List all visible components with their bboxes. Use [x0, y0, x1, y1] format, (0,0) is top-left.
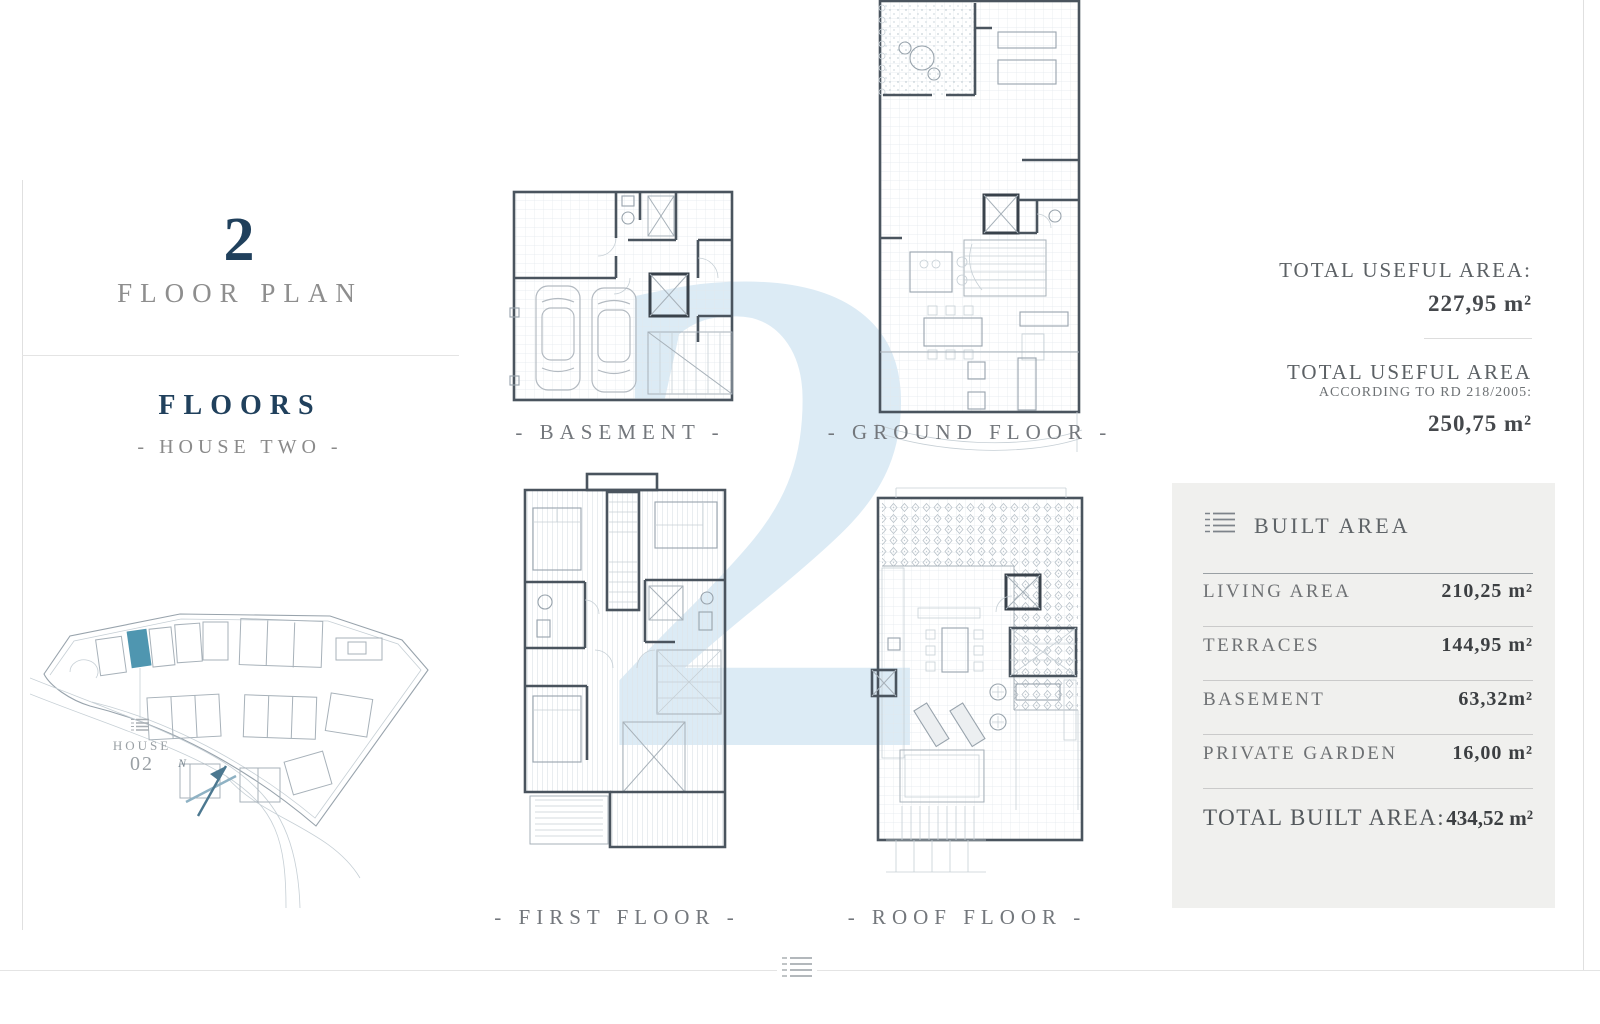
row-divider — [1203, 626, 1533, 627]
useful-area-label: TOTAL USEFUL AREA: — [1279, 258, 1532, 283]
useful-area-block-1: TOTAL USEFUL AREA: 227,95 m² — [1279, 258, 1532, 317]
useful-area-value: 227,95 m² — [1279, 291, 1532, 317]
page-subtitle: FLOOR PLAN — [22, 278, 458, 309]
house-number: 02 — [97, 753, 187, 776]
row-divider — [1203, 734, 1533, 735]
plan-label-first-floor: - FIRST FLOOR - — [467, 905, 767, 930]
page-number: 2 — [22, 205, 458, 276]
useful-area-rd-value: 250,75 m² — [1287, 411, 1532, 437]
row-value: 63,32m² — [1458, 688, 1533, 711]
compass-icon — [186, 766, 236, 816]
built-area-header-divider — [1203, 573, 1533, 574]
total-value: 434,52 m² — [1446, 806, 1533, 831]
title-divider — [22, 355, 459, 356]
roof-floor-plan — [866, 480, 1094, 888]
row-divider — [1203, 680, 1533, 681]
compass-north-label: N — [178, 756, 198, 771]
basement-plan — [498, 182, 748, 412]
row-value: 144,95 m² — [1441, 634, 1533, 657]
built-area-total-row: TOTAL BUILT AREA: 434,52 m² — [1203, 805, 1533, 831]
useful-area-divider — [1424, 338, 1532, 339]
built-area-title: BUILT AREA — [1254, 513, 1411, 539]
highlighted-house — [127, 629, 152, 668]
house-list-icon — [131, 718, 149, 733]
built-area-row: LIVING AREA 210,25 m² — [1203, 580, 1533, 603]
row-value: 16,00 m² — [1452, 742, 1533, 765]
ground-floor-plan — [872, 0, 1087, 455]
row-label: LIVING AREA — [1203, 581, 1351, 603]
built-area-panel: BUILT AREA LIVING AREA 210,25 m² TERRACE… — [1172, 483, 1555, 908]
row-value: 210,25 m² — [1441, 580, 1533, 603]
title-block: 2 FLOOR PLAN — [22, 205, 458, 309]
section-block: FLOORS - HOUSE TWO - — [22, 390, 458, 459]
right-border-line — [1583, 0, 1584, 970]
row-label: BASEMENT — [1203, 689, 1325, 711]
plan-label-ground-floor: - GROUND FLOOR - — [820, 420, 1120, 445]
house-label: HOUSE — [97, 738, 187, 754]
built-area-list-icon — [1205, 511, 1235, 536]
floorplan-page: 2 2 FLOOR PLAN FLOORS - HOUSE TWO - — [0, 0, 1600, 1024]
section-title: FLOORS — [22, 390, 458, 422]
built-area-row: PRIVATE GARDEN 16,00 m² — [1203, 742, 1533, 765]
useful-area-block-2: TOTAL USEFUL AREA ACCORDING TO RD 218/20… — [1287, 360, 1532, 437]
site-plan-drawing — [30, 578, 450, 908]
first-floor-plan — [515, 470, 735, 852]
row-divider — [1203, 788, 1533, 789]
row-label: TERRACES — [1203, 635, 1320, 657]
plan-label-roof-floor: - ROOF FLOOR - — [817, 905, 1117, 930]
footer-list-icon — [780, 955, 814, 981]
total-label: TOTAL BUILT AREA: — [1203, 805, 1445, 831]
plan-label-basement: - BASEMENT - — [495, 420, 745, 445]
footer-icon-box — [777, 952, 817, 984]
built-area-row: TERRACES 144,95 m² — [1203, 634, 1533, 657]
useful-area-rd-label: TOTAL USEFUL AREA — [1287, 360, 1532, 385]
row-label: PRIVATE GARDEN — [1203, 743, 1398, 765]
useful-area-rd-sublabel: ACCORDING TO RD 218/2005: — [1287, 385, 1532, 401]
section-subtitle: - HOUSE TWO - — [22, 436, 458, 459]
site-plan: HOUSE 02 N — [30, 578, 450, 908]
built-area-row: BASEMENT 63,32m² — [1203, 688, 1533, 711]
